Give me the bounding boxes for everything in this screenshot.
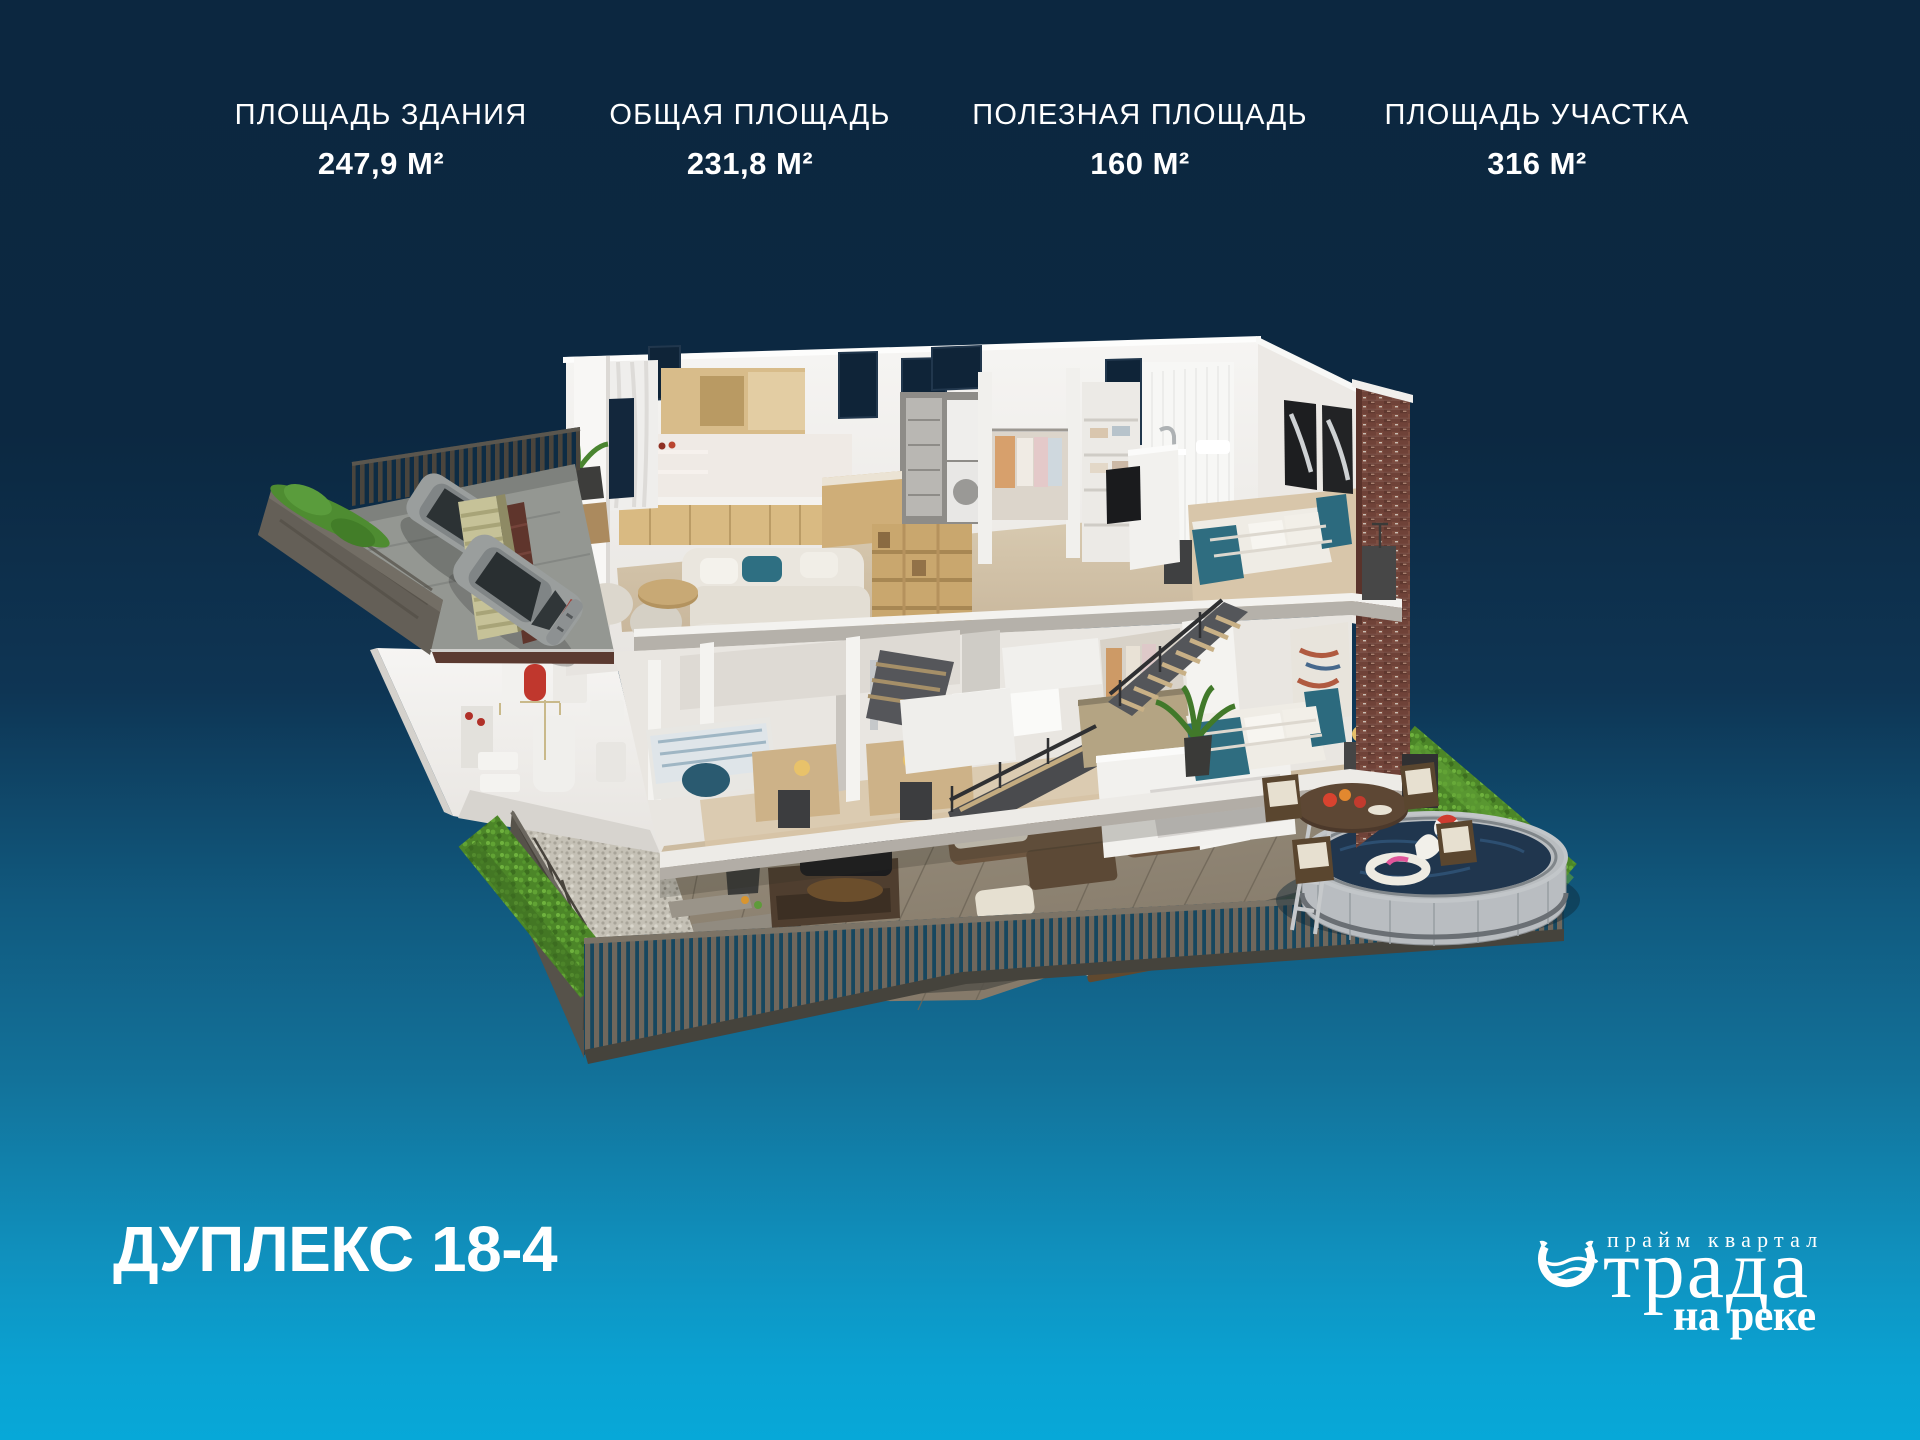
svg-text:на реке: на реке bbox=[1673, 1291, 1816, 1340]
